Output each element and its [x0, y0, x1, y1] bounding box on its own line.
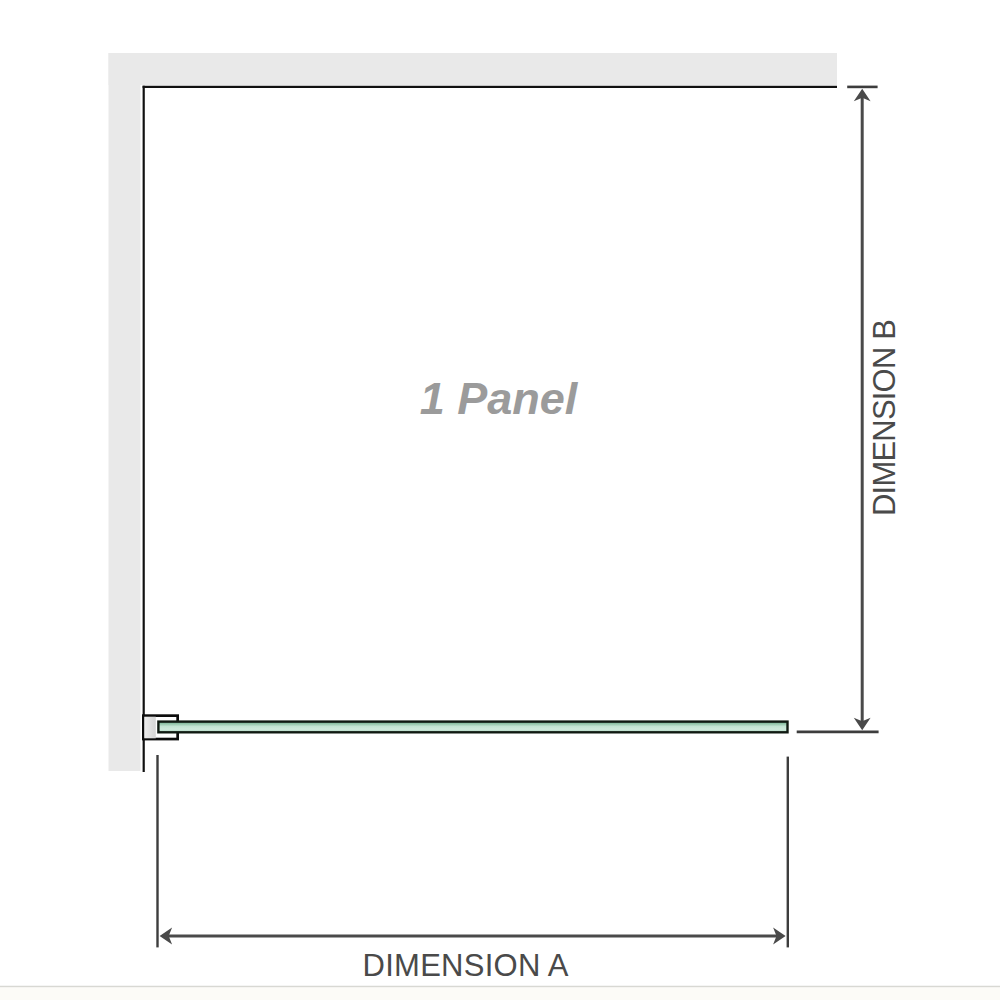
- svg-text:1 Panel: 1 Panel: [420, 373, 579, 424]
- svg-text:DIMENSION B: DIMENSION B: [867, 319, 902, 516]
- svg-text:DIMENSION A: DIMENSION A: [363, 948, 569, 983]
